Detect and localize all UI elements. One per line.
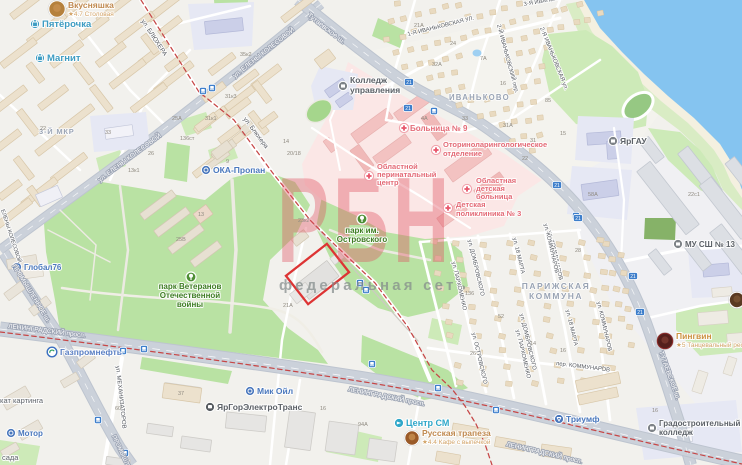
svg-text:33: 33 <box>105 130 111 136</box>
svg-text:колледж: колледж <box>659 428 693 437</box>
svg-text:35к2: 35к2 <box>240 52 252 58</box>
svg-text:Пятёрочка: Пятёрочка <box>42 19 92 30</box>
svg-text:★4.7 Столовая: ★4.7 Столовая <box>68 10 114 18</box>
svg-text:58А: 58А <box>588 192 598 198</box>
svg-text:Пингвин: Пингвин <box>676 331 712 341</box>
svg-text:13: 13 <box>198 212 204 218</box>
svg-text:★4.4 Кафе с выпечкой: ★4.4 Кафе с выпечкой <box>422 438 491 446</box>
svg-text:22с1: 22с1 <box>688 192 700 198</box>
svg-text:Больница № 9: Больница № 9 <box>410 124 468 133</box>
svg-text:22: 22 <box>522 156 528 162</box>
svg-text:16: 16 <box>500 81 506 87</box>
svg-text:ОКА-Пропан: ОКА-Пропан <box>213 165 265 175</box>
svg-text:16: 16 <box>320 406 326 412</box>
svg-text:21: 21 <box>554 183 560 189</box>
svg-text:31к1: 31к1 <box>205 116 217 122</box>
svg-text:21: 21 <box>406 80 412 86</box>
svg-text:КОММУНА: КОММУНА <box>529 291 583 301</box>
svg-text:центр: центр <box>377 178 399 187</box>
svg-text:136: 136 <box>465 291 474 297</box>
svg-text:Островского: Островского <box>337 235 388 244</box>
svg-text:сада: сада <box>2 453 19 462</box>
svg-text:поликлиника № 3: поликлиника № 3 <box>456 209 521 218</box>
svg-text:25А: 25А <box>172 116 182 122</box>
svg-text:Вкусняшка: Вкусняшка <box>68 0 114 10</box>
svg-text:Детская: Детская <box>456 200 486 209</box>
svg-text:Русская трапеза: Русская трапеза <box>422 428 491 438</box>
svg-text:21: 21 <box>630 274 636 280</box>
svg-text:136ст: 136ст <box>180 136 195 142</box>
svg-text:14: 14 <box>530 341 536 347</box>
svg-text:15: 15 <box>560 131 566 137</box>
svg-text:94А: 94А <box>358 422 368 428</box>
svg-text:Отечественной: Отечественной <box>160 291 221 300</box>
svg-text:26: 26 <box>148 151 154 157</box>
svg-text:25В: 25В <box>176 237 186 243</box>
svg-text:26: 26 <box>470 351 476 357</box>
svg-text:Мик Ойл: Мик Ойл <box>257 386 293 396</box>
svg-text:ПАРИЖСКАЯ: ПАРИЖСКАЯ <box>522 281 591 291</box>
svg-text:52: 52 <box>498 314 504 320</box>
svg-text:24: 24 <box>450 41 456 47</box>
svg-text:парк Ветеранов: парк Ветеранов <box>159 282 222 291</box>
svg-text:28: 28 <box>575 248 581 254</box>
svg-text:32А: 32А <box>432 62 442 68</box>
svg-text:31А: 31А <box>503 123 513 129</box>
svg-text:21: 21 <box>637 310 643 316</box>
svg-text:★5 Танцевальный рестор: ★5 Танцевальный рестор <box>676 341 742 349</box>
svg-text:ЯрГАУ: ЯрГАУ <box>620 136 647 146</box>
svg-text:4А: 4А <box>421 116 428 122</box>
svg-text:Триумф: Триумф <box>566 414 600 424</box>
svg-text:22: 22 <box>40 126 46 132</box>
svg-text:33: 33 <box>462 116 468 122</box>
svg-text:федеральная сеть: федеральная сеть <box>279 277 469 294</box>
svg-text:21: 21 <box>405 106 411 112</box>
svg-text:13к1: 13к1 <box>128 168 140 174</box>
svg-text:Газпромнефть: Газпромнефть <box>60 347 122 357</box>
svg-text:60: 60 <box>115 406 121 412</box>
svg-text:21А: 21А <box>283 303 293 309</box>
svg-text:21А: 21А <box>414 23 424 29</box>
svg-text:37: 37 <box>178 391 184 397</box>
svg-text:9: 9 <box>226 159 229 165</box>
svg-text:31к3: 31к3 <box>225 94 237 100</box>
svg-text:14: 14 <box>283 139 289 145</box>
svg-text:21: 21 <box>575 216 581 222</box>
svg-text:31: 31 <box>530 138 536 144</box>
svg-text:16: 16 <box>652 408 658 414</box>
svg-text:ИВАНЬКОВО: ИВАНЬКОВО <box>449 93 510 102</box>
svg-text:МУ СШ № 13: МУ СШ № 13 <box>685 240 735 249</box>
svg-text:20/18: 20/18 <box>287 151 301 157</box>
svg-text:Градостроительный: Градостроительный <box>659 419 741 428</box>
svg-text:Колледж: Колледж <box>350 75 388 85</box>
svg-text:парк им.: парк им. <box>345 226 378 235</box>
svg-text:управления: управления <box>350 85 400 95</box>
svg-text:7А: 7А <box>480 56 487 62</box>
svg-text:85: 85 <box>545 98 551 104</box>
svg-text:16: 16 <box>560 348 566 354</box>
svg-text:Магнит: Магнит <box>47 53 81 64</box>
svg-text:отделение: отделение <box>443 149 482 158</box>
svg-text:23к2: 23к2 <box>298 218 310 224</box>
svg-text:войны: войны <box>177 300 203 309</box>
svg-text:кат картинга: кат картинга <box>0 396 44 405</box>
svg-text:Глобал76: Глобал76 <box>24 263 62 272</box>
svg-text:Центр СМ: Центр СМ <box>406 418 449 428</box>
svg-text:Мотор: Мотор <box>18 429 43 438</box>
svg-text:ЯрГорЭлектроТранс: ЯрГорЭлектроТранс <box>217 402 303 412</box>
svg-text:7: 7 <box>601 366 604 372</box>
